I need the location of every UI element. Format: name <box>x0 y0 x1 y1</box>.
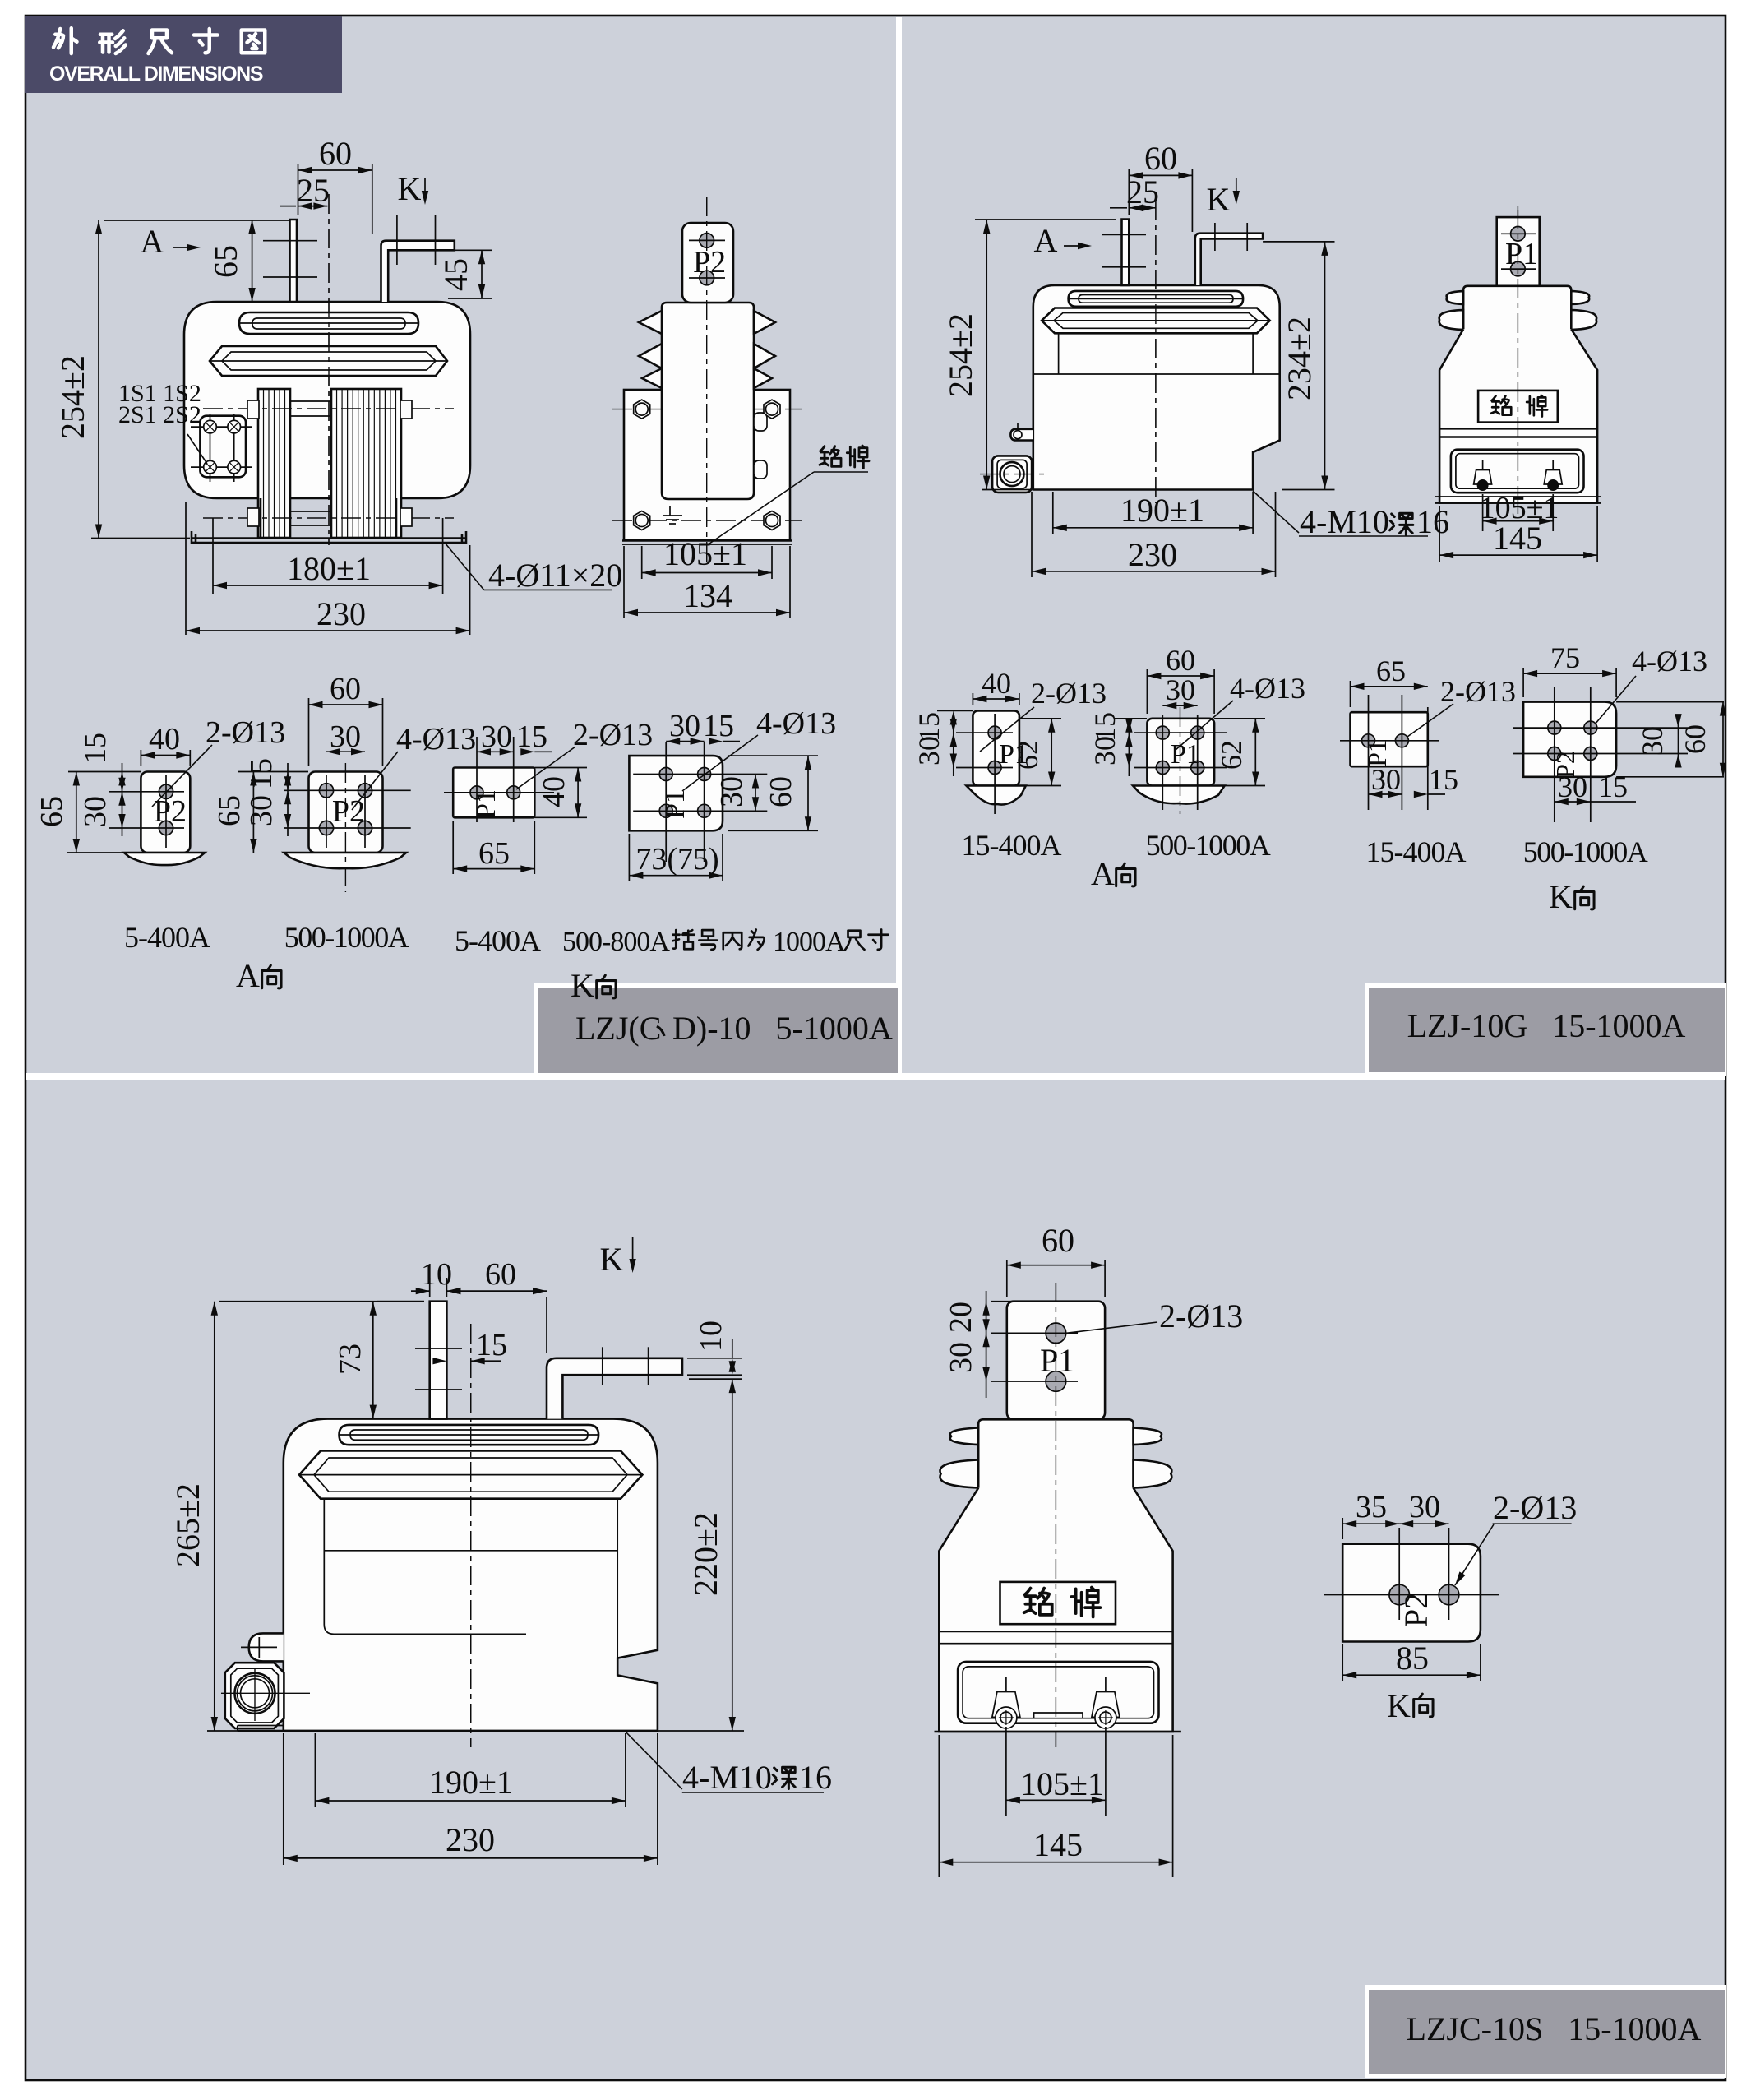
svg-text:30: 30 <box>714 776 749 807</box>
svg-text:65: 65 <box>1376 655 1406 687</box>
svg-text:4-Ø13: 4-Ø13 <box>1230 672 1305 705</box>
svg-text:15: 15 <box>516 719 547 754</box>
svg-text:30: 30 <box>1558 770 1587 803</box>
svg-text:60: 60 <box>1144 140 1177 177</box>
svg-text:15: 15 <box>703 709 734 743</box>
svg-text:16: 16 <box>1416 503 1449 540</box>
svg-text:A: A <box>236 957 260 994</box>
svg-text:60: 60 <box>485 1257 516 1292</box>
svg-text:15: 15 <box>78 733 113 764</box>
svg-text:5-400A: 5-400A <box>124 921 210 954</box>
svg-text:180±1: 180±1 <box>287 550 371 587</box>
svg-text:105±1: 105±1 <box>663 535 747 572</box>
svg-text:1000A: 1000A <box>773 927 846 957</box>
svg-text:60: 60 <box>1042 1222 1074 1259</box>
svg-text:LZJ-10G 15-1000A: LZJ-10G 15-1000A <box>1407 1007 1686 1044</box>
svg-text:75: 75 <box>1550 641 1580 674</box>
svg-text:25: 25 <box>1126 173 1159 210</box>
svg-text:K: K <box>1387 1687 1411 1724</box>
svg-text:65: 65 <box>35 796 69 827</box>
svg-text:500-800A: 500-800A <box>562 927 670 957</box>
svg-text:15-400A: 15-400A <box>962 829 1062 862</box>
svg-text:85: 85 <box>1396 1640 1429 1677</box>
svg-text:5-400A: 5-400A <box>455 924 541 957</box>
svg-text:60: 60 <box>1679 724 1712 754</box>
svg-text:A: A <box>1091 855 1115 892</box>
svg-text:500-1000A: 500-1000A <box>1146 829 1271 862</box>
svg-text:35: 35 <box>1356 1490 1387 1524</box>
svg-text:190±1: 190±1 <box>1120 492 1204 529</box>
svg-text:30: 30 <box>1088 736 1121 766</box>
svg-text:15: 15 <box>476 1328 507 1362</box>
svg-text:P1: P1 <box>471 789 501 819</box>
svg-text:P1: P1 <box>660 789 691 819</box>
svg-text:62: 62 <box>1011 740 1044 770</box>
svg-text:500-1000A: 500-1000A <box>1523 835 1648 868</box>
svg-text:40: 40 <box>149 722 180 756</box>
svg-text:30: 30 <box>481 719 512 754</box>
svg-text:P1: P1 <box>1171 739 1200 770</box>
svg-text:105±1: 105±1 <box>1020 1765 1104 1802</box>
svg-text:62: 62 <box>1215 740 1248 770</box>
svg-text:25: 25 <box>297 172 330 209</box>
svg-text:60: 60 <box>764 776 798 807</box>
svg-text:30: 30 <box>1371 763 1401 796</box>
svg-text:2-Ø13: 2-Ø13 <box>1031 677 1107 710</box>
svg-text:2-Ø13: 2-Ø13 <box>1440 675 1516 708</box>
svg-text:40: 40 <box>982 667 1011 700</box>
svg-text:D)-10 5-1000A: D)-10 5-1000A <box>672 1010 893 1047</box>
svg-text:K: K <box>571 967 594 1004</box>
svg-text:30: 30 <box>944 1342 978 1373</box>
svg-text:30: 30 <box>669 709 700 743</box>
svg-text:60: 60 <box>330 672 361 706</box>
svg-text:20: 20 <box>944 1302 978 1333</box>
svg-text:30: 30 <box>1166 673 1195 706</box>
svg-text:2-Ø13: 2-Ø13 <box>206 715 285 750</box>
svg-text:A: A <box>141 223 164 260</box>
svg-text:30: 30 <box>244 795 279 826</box>
svg-text:4-Ø11×20: 4-Ø11×20 <box>488 557 622 594</box>
svg-text:2-Ø13: 2-Ø13 <box>573 718 653 752</box>
svg-text:40: 40 <box>537 776 571 807</box>
svg-text:LZJ(C: LZJ(C <box>575 1010 661 1047</box>
svg-text:30: 30 <box>1409 1490 1440 1524</box>
svg-text:220±2: 220±2 <box>687 1512 724 1596</box>
svg-text:P1: P1 <box>1505 237 1538 271</box>
svg-text:265±2: 265±2 <box>169 1483 206 1567</box>
svg-text:500-1000A: 500-1000A <box>284 921 409 954</box>
svg-text:65: 65 <box>212 795 247 826</box>
svg-text:190±1: 190±1 <box>429 1764 513 1801</box>
svg-text:145: 145 <box>1493 520 1542 557</box>
svg-text:2-Ø13: 2-Ø13 <box>1159 1297 1243 1334</box>
svg-text:OVERALL DIMENSIONS: OVERALL DIMENSIONS <box>49 62 265 86</box>
svg-text:45: 45 <box>437 258 474 291</box>
svg-text:K: K <box>398 170 422 207</box>
svg-text:73(75): 73(75) <box>635 842 718 877</box>
svg-text:65: 65 <box>207 245 244 278</box>
svg-text:230: 230 <box>316 595 366 632</box>
svg-text:254±2: 254±2 <box>942 313 979 397</box>
svg-text:10: 10 <box>421 1257 452 1292</box>
svg-text:10: 10 <box>694 1321 728 1352</box>
svg-text:30: 30 <box>78 796 113 827</box>
svg-text:15-400A: 15-400A <box>1366 835 1467 868</box>
svg-text:2S1 2S2: 2S1 2S2 <box>118 401 201 428</box>
svg-text:230: 230 <box>446 1821 495 1858</box>
svg-text:15: 15 <box>244 758 279 789</box>
svg-text:60: 60 <box>1166 644 1195 677</box>
svg-text:134: 134 <box>683 577 732 614</box>
svg-text:P2: P2 <box>693 245 726 280</box>
svg-text:73: 73 <box>333 1344 367 1375</box>
svg-text:4-Ø13: 4-Ø13 <box>396 722 476 756</box>
svg-text:65: 65 <box>478 836 510 871</box>
svg-text:4-Ø13: 4-Ø13 <box>756 706 836 741</box>
svg-text:60: 60 <box>319 135 352 172</box>
svg-text:4-Ø13: 4-Ø13 <box>1632 645 1707 678</box>
svg-text:K: K <box>600 1241 624 1278</box>
svg-text:LZJC-10S 15-1000A: LZJC-10S 15-1000A <box>1407 2010 1702 2047</box>
svg-text:230: 230 <box>1128 536 1177 573</box>
svg-text:234±2: 234±2 <box>1281 317 1318 400</box>
svg-text:K: K <box>1549 878 1573 915</box>
svg-text:A: A <box>1034 222 1058 259</box>
svg-text:4-M10: 4-M10 <box>1300 503 1389 540</box>
svg-text:15: 15 <box>1598 770 1628 803</box>
svg-text:2-Ø13: 2-Ø13 <box>1493 1489 1577 1526</box>
svg-text:145: 145 <box>1033 1826 1083 1863</box>
svg-text:P2: P2 <box>1398 1593 1435 1627</box>
svg-text:30: 30 <box>330 719 361 754</box>
svg-text:K: K <box>1207 181 1231 218</box>
svg-text:254±2: 254±2 <box>54 355 91 439</box>
svg-text:30: 30 <box>1636 726 1669 756</box>
svg-text:15: 15 <box>1429 763 1458 796</box>
svg-text:P1: P1 <box>1040 1342 1074 1379</box>
svg-text:30: 30 <box>912 736 945 766</box>
svg-text:16: 16 <box>799 1759 832 1796</box>
svg-text:4-M10: 4-M10 <box>682 1759 772 1796</box>
